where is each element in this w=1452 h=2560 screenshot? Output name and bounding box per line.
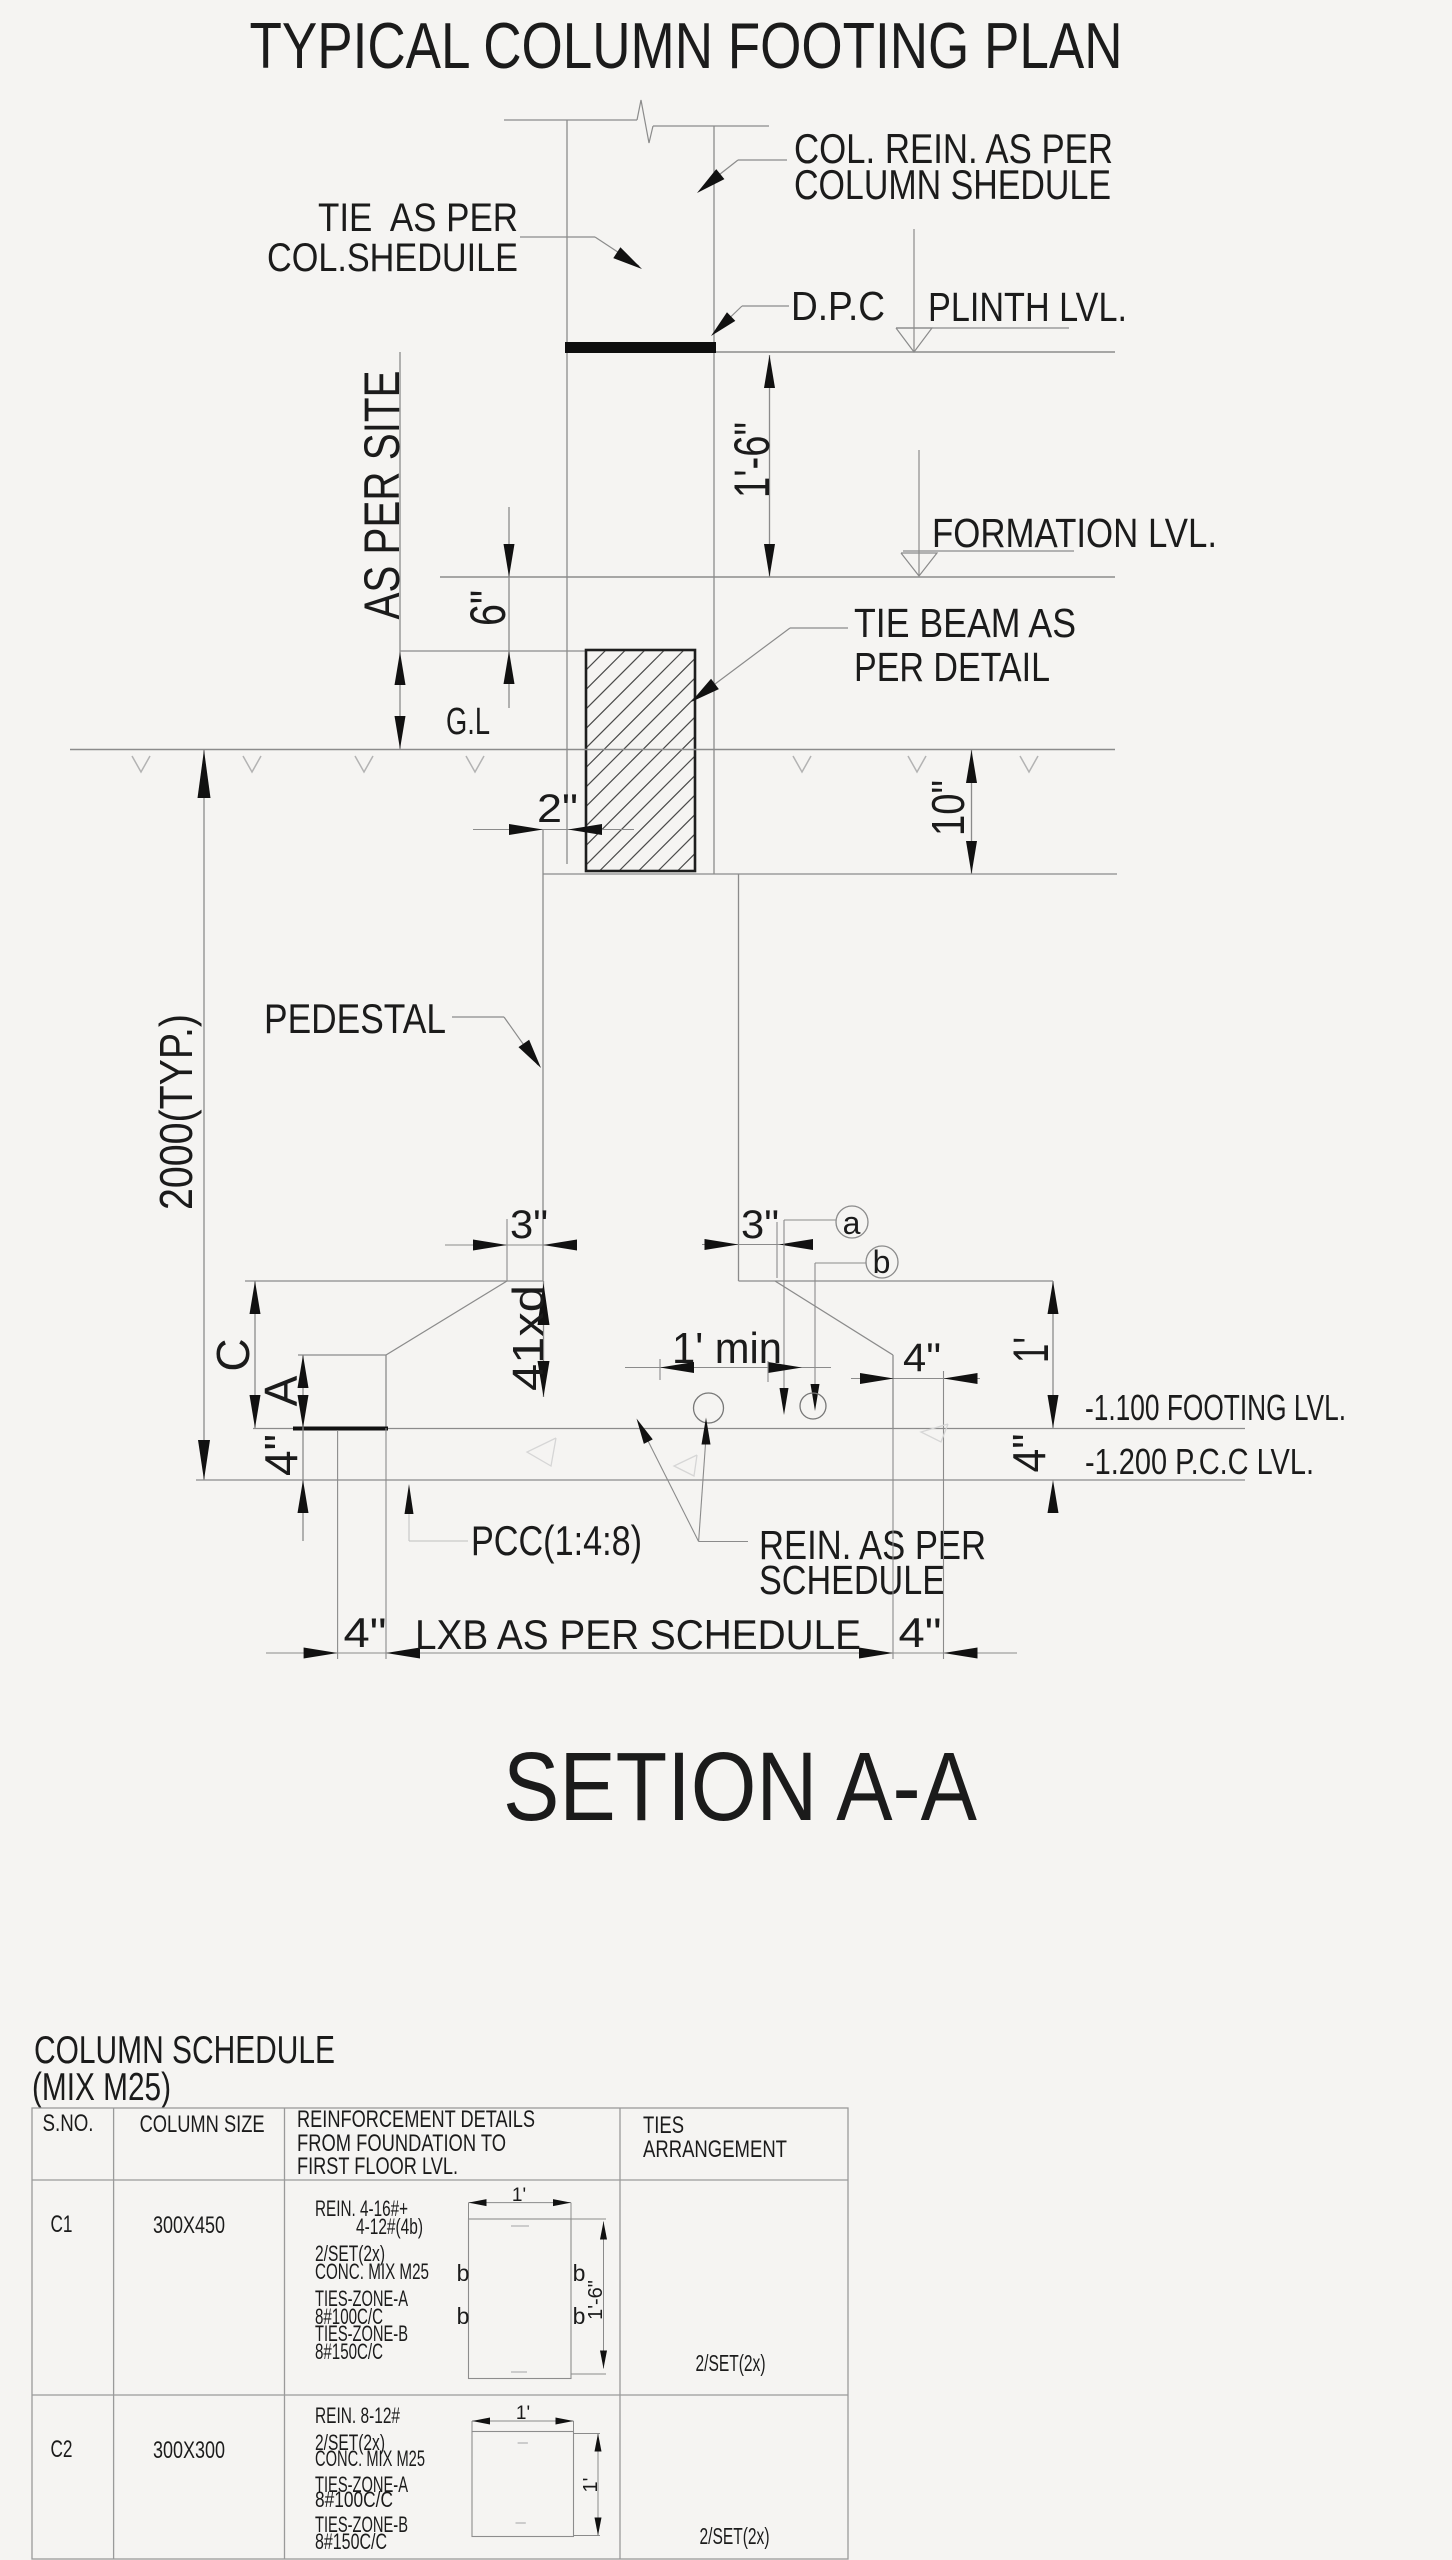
- svg-text:b: b: [457, 2303, 470, 2329]
- svg-text:AS PER SITE: AS PER SITE: [354, 371, 410, 620]
- svg-text:D.P.C: D.P.C: [791, 283, 885, 329]
- svg-text:-1.100 FOOTING LVL.: -1.100 FOOTING LVL.: [1085, 1387, 1346, 1428]
- svg-text:COLUMN SHEDULE: COLUMN SHEDULE: [794, 161, 1111, 208]
- svg-text:8#100C/C: 8#100C/C: [315, 2487, 393, 2512]
- svg-text:REINFORCEMENT DETAILS: REINFORCEMENT DETAILS: [297, 2106, 535, 2133]
- svg-text:a: a: [843, 1205, 861, 1241]
- svg-text:6": 6": [460, 590, 516, 626]
- svg-text:4": 4": [255, 1434, 307, 1476]
- svg-text:SCHEDULE: SCHEDULE: [759, 1557, 945, 1603]
- svg-text:4-12#(4b): 4-12#(4b): [356, 2214, 423, 2239]
- svg-text:COL.SHEDUILE: COL.SHEDUILE: [267, 236, 518, 280]
- svg-text:C1: C1: [51, 2211, 73, 2238]
- svg-text:TIES: TIES: [643, 2112, 684, 2139]
- svg-text:1'-6": 1'-6": [724, 422, 780, 498]
- svg-text:3": 3": [510, 1203, 548, 1247]
- svg-text:C: C: [207, 1338, 259, 1371]
- svg-text:ARRANGEMENT: ARRANGEMENT: [643, 2136, 787, 2163]
- svg-text:TYPICAL COLUMN FOOTING PLAN: TYPICAL COLUMN FOOTING PLAN: [250, 9, 1123, 82]
- svg-text:G.L: G.L: [446, 701, 490, 743]
- svg-text:REIN. 8-12#: REIN. 8-12#: [315, 2403, 401, 2428]
- svg-text:CONC. MIX M25: CONC. MIX M25: [315, 2259, 429, 2284]
- svg-text:4": 4": [903, 1336, 941, 1380]
- svg-text:1': 1': [512, 2185, 526, 2206]
- svg-text:SETION A-A: SETION A-A: [503, 1732, 977, 1841]
- svg-text:2000(TYP.): 2000(TYP.): [150, 1014, 202, 1210]
- svg-text:-1.200 P.C.C LVL.: -1.200 P.C.C LVL.: [1085, 1441, 1314, 1482]
- svg-text:PEDESTAL: PEDESTAL: [264, 995, 446, 1042]
- svg-text:b: b: [873, 1244, 891, 1280]
- svg-text:A: A: [255, 1375, 307, 1406]
- svg-text:PLINTH LVL.: PLINTH LVL.: [928, 284, 1127, 330]
- svg-text:TIE AS PER: TIE AS PER: [318, 196, 518, 240]
- svg-text:4": 4": [344, 1609, 387, 1656]
- svg-text:8#150C/C: 8#150C/C: [315, 2339, 383, 2364]
- svg-text:2": 2": [537, 787, 578, 831]
- svg-text:2/SET(2x): 2/SET(2x): [696, 2350, 766, 2376]
- svg-text:C2: C2: [51, 2436, 73, 2463]
- svg-text:300X300: 300X300: [153, 2437, 225, 2464]
- svg-text:1'-6": 1'-6": [585, 2280, 607, 2320]
- svg-text:FORMATION LVL.: FORMATION LVL.: [932, 510, 1217, 556]
- svg-text:S.NO.: S.NO.: [43, 2110, 94, 2137]
- svg-text:2/SET(2x): 2/SET(2x): [700, 2523, 770, 2549]
- svg-text:LXB AS PER SCHEDULE: LXB AS PER SCHEDULE: [415, 1611, 861, 1658]
- svg-text:8#150C/C: 8#150C/C: [315, 2529, 387, 2554]
- svg-text:b: b: [573, 2303, 586, 2329]
- svg-text:1': 1': [516, 2403, 530, 2424]
- svg-text:b: b: [573, 2260, 586, 2286]
- svg-text:b: b: [457, 2260, 470, 2286]
- svg-text:FIRST FLOOR LVL.: FIRST FLOOR LVL.: [297, 2153, 458, 2180]
- svg-text:300X450: 300X450: [153, 2212, 225, 2239]
- svg-text:PCC(1:4:8): PCC(1:4:8): [471, 1517, 642, 1564]
- svg-text:COLUMN SIZE: COLUMN SIZE: [140, 2111, 265, 2138]
- svg-text:4": 4": [899, 1609, 942, 1656]
- svg-text:(MIX M25): (MIX M25): [32, 2066, 171, 2109]
- svg-text:41xd: 41xd: [504, 1285, 553, 1391]
- svg-text:CONC. MIX M25: CONC. MIX M25: [315, 2446, 425, 2471]
- svg-text:1': 1': [1003, 1337, 1059, 1363]
- svg-text:1': 1': [580, 2478, 602, 2493]
- svg-text:PER DETAIL: PER DETAIL: [854, 644, 1050, 690]
- svg-text:4": 4": [1003, 1434, 1055, 1473]
- svg-text:3": 3": [741, 1203, 779, 1247]
- svg-text:TIE BEAM AS: TIE BEAM AS: [854, 600, 1076, 646]
- svg-text:10": 10": [922, 780, 974, 836]
